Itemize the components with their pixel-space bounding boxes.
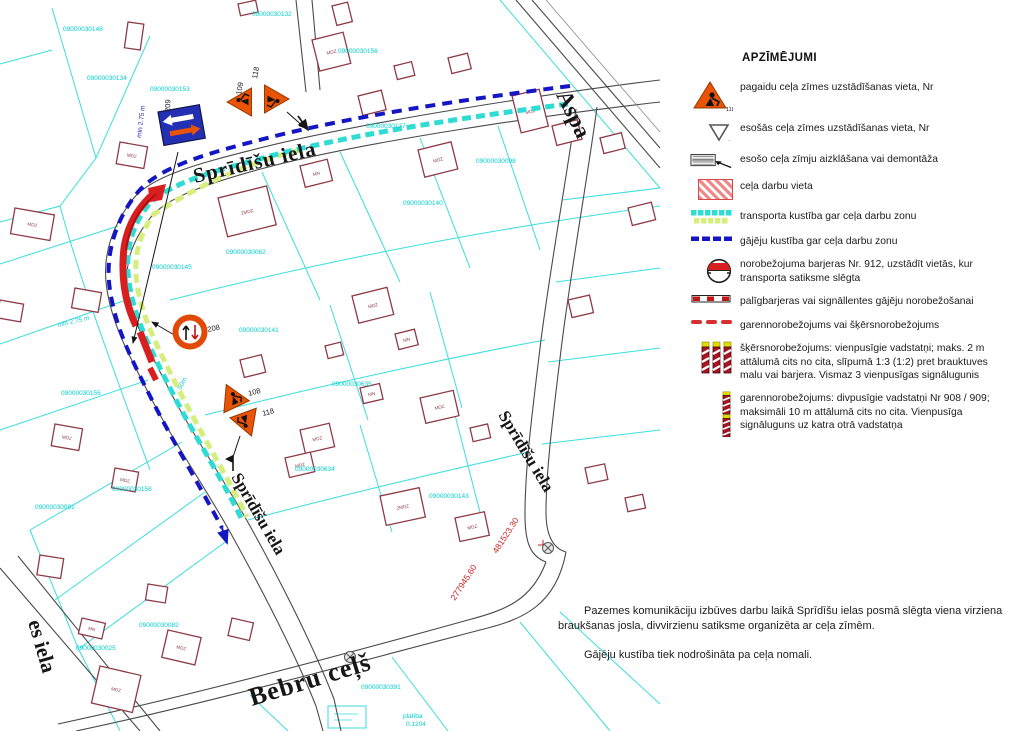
building: MDZ: [352, 287, 394, 323]
legend-row: garennorobežojums: divpusīgie vadstatņi …: [690, 391, 1020, 437]
cadastral-number: 09000030156: [338, 48, 378, 55]
legend-row: šķērsnorobežojums: vienpusīgie vadstatņi…: [690, 341, 1020, 382]
building: [358, 90, 386, 115]
sign-triangle-108: [214, 379, 250, 413]
coordinate-label: 481523.30: [490, 515, 521, 555]
building: [625, 494, 646, 511]
svg-text:..: ..: [728, 137, 731, 143]
legend-row: transporta kustība gar ceļa darbu zonu: [690, 209, 1020, 225]
cadastral-number: 09000030155: [61, 390, 101, 397]
legend-item-label: esošo ceļa zīmju aizklāšana vai demontāž…: [740, 152, 1012, 166]
legend-item-label: norobežojuma barjeras Nr. 912, uzstādīt …: [740, 257, 1012, 285]
street-label-es-iela: es iela: [23, 617, 61, 676]
longitudinal-barrier-icon: [690, 318, 740, 326]
notes-block: Pazemes komunikāciju izbūves darbu laikā…: [558, 604, 1010, 676]
building: [448, 53, 471, 73]
sign-number: 209: [163, 99, 172, 112]
street-label-bebru: Bebru ceļš: [245, 647, 375, 713]
cadastral-number: 09000030158: [112, 486, 152, 493]
manhole-icon: [345, 543, 554, 663]
cadastral-number: 09000030132: [252, 11, 292, 18]
legend-row: norobežojuma barjeras Nr. 912, uzstādīt …: [690, 257, 1020, 285]
existing-sign-icon: ..: [690, 121, 740, 143]
building: [325, 342, 344, 358]
building: 2MDZ: [380, 488, 425, 526]
legend-row: gājēju kustība gar ceļa darbu zonu: [690, 234, 1020, 248]
barrier-flag: [225, 455, 233, 471]
posts-single-icon: [690, 341, 740, 375]
building: 2MDZ: [218, 186, 276, 237]
cadastral-number: 09000030145: [152, 264, 192, 271]
svg-text:platība: platība: [403, 713, 423, 720]
legend-row: ceļa darbu vieta: [690, 179, 1020, 200]
legend-item-label: ceļa darbu vieta: [740, 179, 1012, 193]
cadastral-number: 09000030148: [63, 26, 103, 33]
legend-item-label: palīgbarjeras vai signāllentes gājēju no…: [740, 294, 1012, 308]
building: MN: [300, 159, 332, 187]
transport-flow-icon: [690, 209, 740, 225]
building: [145, 584, 167, 603]
cadastral-number: 09000030082: [139, 622, 179, 629]
svg-text:118: 118: [726, 107, 733, 112]
building: MDZ: [420, 390, 459, 423]
legend-row: garennorobežojums vai šķērsnorobežojums: [690, 318, 1020, 332]
pedestrian-flow-icon: [690, 234, 740, 244]
building: [470, 424, 491, 442]
legend-item-label: šķērsnorobežojums: vienpusīgie vadstatņi…: [740, 341, 1012, 382]
building: [568, 295, 593, 317]
cadastral-number: 09000030140: [403, 200, 443, 207]
legend-title: APZĪMĒJUMI: [690, 52, 1020, 64]
building: MDZ: [51, 424, 82, 451]
legend-row: ..esošās ceļa zīmes uzstādīšanas vieta, …: [690, 121, 1020, 143]
legend-item-label: pagaidu ceļa zīmes uzstādīšanas vieta, N…: [740, 80, 1012, 94]
building: [124, 22, 143, 50]
area-note: platība 0.1204: [403, 713, 426, 728]
cadastral-number: 09000030025: [76, 645, 116, 652]
temp-sign-icon: 118: [690, 80, 740, 112]
legend-row: 118pagaidu ceļa zīmes uzstādīšanas vieta…: [690, 80, 1020, 112]
aux-barrier-icon: [690, 294, 740, 304]
building: MDZ: [162, 630, 201, 665]
building: [628, 202, 656, 225]
cadastral-number: 09000030634: [295, 466, 335, 473]
cadastral-number: 09000030391: [361, 684, 401, 691]
building: [37, 555, 64, 579]
sign-cover-icon: [690, 152, 740, 170]
building: MDZ: [10, 208, 54, 241]
legend-row: palīgbarjeras vai signāllentes gājēju no…: [690, 294, 1020, 308]
note-paragraph: Gājēju kustība tiek nodrošināta pa ceļa …: [558, 648, 1010, 663]
cadastral-number: 09000030098: [476, 158, 516, 165]
sign-number: 118: [261, 406, 275, 418]
legend-item-label: esošās ceļa zīmes uzstādīšanas vieta, Nr: [740, 121, 1012, 135]
sign-round-208: [176, 318, 205, 347]
sign-triangle-118-top: [265, 85, 290, 113]
building: MDZ: [285, 452, 315, 477]
building: [240, 355, 266, 378]
posts-double-icon: [690, 391, 740, 437]
cadastral-number: 09000030153: [150, 86, 190, 93]
sign-number: 108: [247, 386, 261, 398]
coordinate-label: 277945.60: [448, 562, 479, 602]
work-area-icon: [690, 179, 740, 200]
pedestrian-flow-arrow: [222, 528, 227, 543]
cadastral-number: 09000030137: [366, 123, 406, 130]
building: MDZ: [455, 512, 489, 542]
sign-number: 208: [207, 323, 221, 334]
cadastral-number: 09000030143: [429, 493, 469, 500]
building: [585, 464, 608, 484]
legend-item-label: garennorobežojums vai šķērsnorobežojums: [740, 318, 1012, 332]
legend-rows: 118pagaidu ceļa zīmes uzstādīšanas vieta…: [690, 80, 1020, 437]
legend-panel: APZĪMĒJUMI 118pagaidu ceļa zīmes uzstādī…: [690, 52, 1020, 446]
note-paragraph: Pazemes komunikāciju izbūves darbu laikā…: [558, 604, 1010, 635]
building: [0, 300, 24, 322]
cadastral-number: 09000030091: [35, 504, 75, 511]
traffic-plan-page: MDZMDZMDZMDZ2MDZMNMDZMDZMNMDZMNMDZMDZ2MD…: [0, 0, 1024, 731]
legend-row: esošo ceļa zīmju aizklāšana vai demontāž…: [690, 152, 1020, 170]
cadastral-number: 09000030134: [87, 75, 127, 82]
min-width-label: min 2.75 m: [136, 105, 147, 139]
min-width-label: min 2.75 m: [57, 315, 91, 329]
street-label-spridisu-top: Sprīdīšu iela: [191, 136, 319, 188]
building: [332, 2, 352, 25]
building: [394, 62, 415, 80]
building: [228, 618, 253, 640]
legend-item-label: garennorobežojums: divpusīgie vadstatņi …: [740, 391, 1012, 432]
distance-label: 50m: [177, 376, 189, 391]
barrier-912-icon: [690, 257, 740, 285]
cadastral-number: 09000030635: [332, 381, 372, 388]
sign-triangle-118-mid: [230, 408, 265, 441]
legend-item-label: transporta kustība gar ceļa darbu zonu: [740, 209, 1012, 223]
svg-text:0.1204: 0.1204: [406, 721, 426, 728]
building: MDZ: [300, 423, 335, 453]
building: [600, 133, 625, 154]
building: MDZ: [116, 142, 147, 169]
building: [72, 288, 102, 312]
legend-item-label: gājēju kustība gar ceļa darbu zonu: [740, 234, 1012, 248]
cadastral-number: 09000030141: [239, 327, 279, 334]
cadastral-number: 09000030062: [226, 249, 266, 256]
sign-number: 118: [250, 66, 261, 79]
building: MN: [395, 329, 418, 349]
building: MDZ: [91, 666, 140, 712]
